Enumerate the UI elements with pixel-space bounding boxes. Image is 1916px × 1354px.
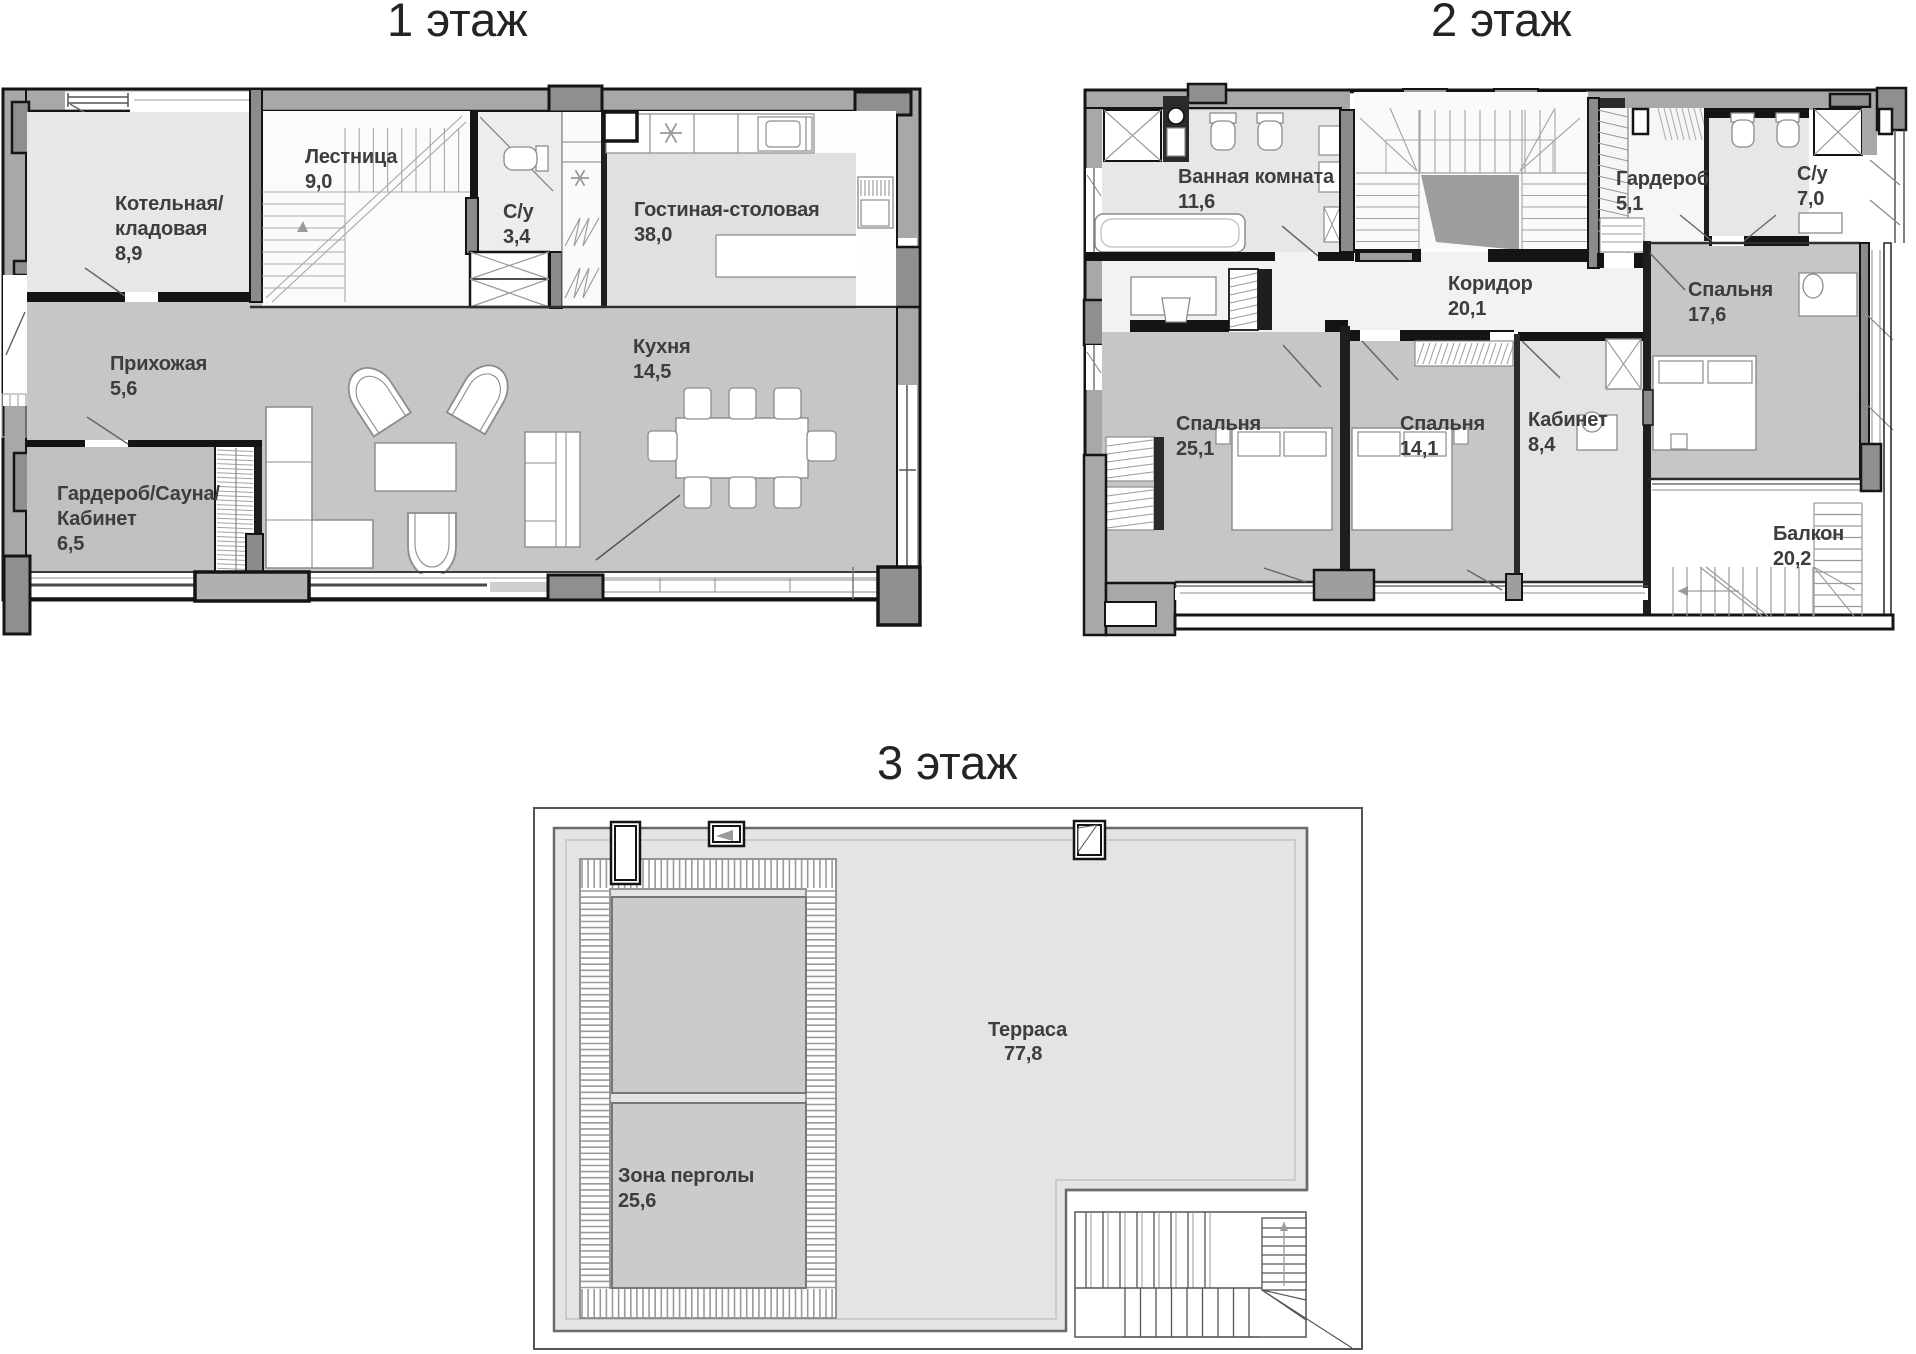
svg-text:14,1: 14,1 <box>1400 438 1438 460</box>
svg-text:7,0: 7,0 <box>1797 188 1824 210</box>
svg-text:20,1: 20,1 <box>1448 298 1486 320</box>
svg-text:Гардероб/Сауна/: Гардероб/Сауна/ <box>57 483 220 505</box>
svg-text:11,6: 11,6 <box>1178 191 1215 213</box>
svg-text:8,4: 8,4 <box>1528 434 1556 456</box>
svg-text:8,9: 8,9 <box>115 243 142 265</box>
svg-text:2 этаж: 2 этаж <box>1431 0 1572 46</box>
svg-text:3 этаж: 3 этаж <box>877 736 1018 789</box>
svg-text:Ванная комната: Ванная комната <box>1178 166 1335 188</box>
svg-text:Гостиная-столовая: Гостиная-столовая <box>634 199 820 221</box>
svg-text:Кабинет: Кабинет <box>1528 409 1608 431</box>
svg-text:Зона перголы: Зона перголы <box>618 1165 754 1187</box>
svg-text:Терраса: Терраса <box>988 1019 1068 1041</box>
svg-text:Спальня: Спальня <box>1176 413 1261 435</box>
svg-text:6,5: 6,5 <box>57 533 84 555</box>
svg-text:9,0: 9,0 <box>305 171 332 193</box>
svg-text:С/у: С/у <box>503 201 535 223</box>
svg-text:Коридор: Коридор <box>1448 273 1533 295</box>
svg-text:25,6: 25,6 <box>618 1190 656 1212</box>
svg-text:17,6: 17,6 <box>1688 304 1726 326</box>
svg-text:Кабинет: Кабинет <box>57 508 137 530</box>
svg-text:5,1: 5,1 <box>1616 193 1643 215</box>
svg-text:77,8: 77,8 <box>1004 1043 1042 1065</box>
svg-text:С/у: С/у <box>1797 163 1829 185</box>
svg-text:25,1: 25,1 <box>1176 438 1214 460</box>
svg-text:Спальня: Спальня <box>1688 279 1773 301</box>
svg-text:38,0: 38,0 <box>634 224 672 246</box>
svg-text:20,2: 20,2 <box>1773 548 1811 570</box>
svg-text:Прихожая: Прихожая <box>110 353 207 375</box>
svg-text:Котельная/: Котельная/ <box>115 193 224 215</box>
svg-text:Кухня: Кухня <box>633 336 690 358</box>
svg-text:3,4: 3,4 <box>503 226 531 248</box>
svg-text:14,5: 14,5 <box>633 361 671 383</box>
svg-text:Спальня: Спальня <box>1400 413 1485 435</box>
svg-text:Лестница: Лестница <box>305 146 398 168</box>
svg-text:5,6: 5,6 <box>110 378 137 400</box>
svg-text:кладовая: кладовая <box>115 218 207 240</box>
svg-text:Гардероб: Гардероб <box>1616 168 1709 190</box>
svg-text:1 этаж: 1 этаж <box>387 0 528 46</box>
svg-text:Балкон: Балкон <box>1773 523 1844 545</box>
